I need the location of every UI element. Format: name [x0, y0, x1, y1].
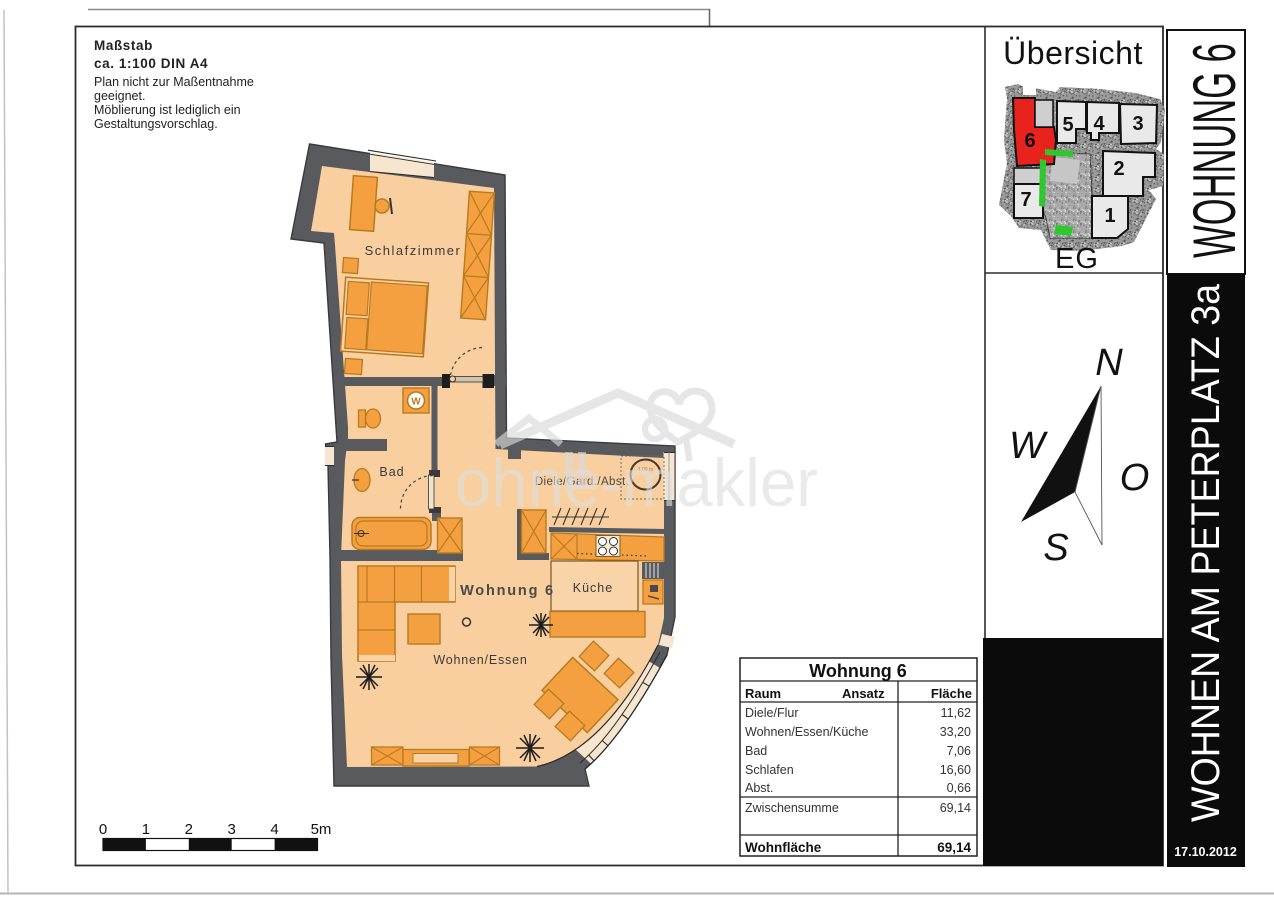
svg-text:2: 2 — [185, 821, 193, 838]
svg-text:Bad: Bad — [379, 465, 404, 479]
svg-text:Zwischensumme: Zwischensumme — [745, 801, 839, 815]
svg-text:Übersicht: Übersicht — [1003, 35, 1143, 71]
svg-text:Wohnen/Essen: Wohnen/Essen — [433, 653, 527, 667]
svg-text:2: 2 — [1113, 158, 1124, 180]
svg-text:0: 0 — [99, 821, 107, 838]
svg-text:3: 3 — [228, 821, 236, 838]
svg-text:Möblierung ist lediglich ein: Möblierung ist lediglich ein — [94, 103, 241, 117]
svg-text:3: 3 — [1132, 113, 1143, 135]
svg-text:Maßstab: Maßstab — [94, 38, 153, 53]
svg-text:Plan nicht zur Maßentnahme: Plan nicht zur Maßentnahme — [94, 75, 254, 89]
svg-text:4: 4 — [270, 821, 278, 838]
svg-text:O: O — [1120, 457, 1150, 499]
svg-text:7: 7 — [1020, 189, 1031, 211]
svg-text:ohne-makler: ohne-makler — [455, 445, 818, 521]
svg-text:N: N — [1095, 342, 1123, 384]
svg-text:S: S — [1043, 527, 1068, 569]
svg-text:Schlafzimmer: Schlafzimmer — [365, 243, 462, 258]
svg-text:1: 1 — [1104, 205, 1115, 227]
svg-text:Wohnfläche: Wohnfläche — [745, 840, 822, 855]
svg-text:6: 6 — [1024, 130, 1035, 152]
svg-text:Küche: Küche — [573, 581, 613, 595]
svg-text:WOHNUNG 6: WOHNUNG 6 — [1182, 43, 1248, 258]
svg-text:geeignet.: geeignet. — [94, 89, 145, 103]
svg-text:ca. 1:100 DIN A4: ca. 1:100 DIN A4 — [94, 56, 208, 71]
svg-text:1: 1 — [142, 821, 150, 838]
svg-text:33,20: 33,20 — [940, 725, 971, 739]
svg-text:Wohnung 6: Wohnung 6 — [460, 583, 555, 599]
svg-text:11,62: 11,62 — [941, 706, 971, 720]
svg-text:Ansatz: Ansatz — [842, 686, 885, 701]
svg-text:WOHNEN AM PETERPLATZ 3a: WOHNEN AM PETERPLATZ 3a — [1184, 284, 1228, 822]
svg-text:0,66: 0,66 — [947, 781, 971, 795]
svg-text:69,14: 69,14 — [937, 840, 971, 855]
svg-text:5: 5 — [1062, 114, 1073, 136]
svg-text:Abst.: Abst. — [745, 781, 774, 795]
svg-text:Wohnen/Essen/Küche: Wohnen/Essen/Küche — [745, 725, 869, 739]
svg-text:Diele/Flur: Diele/Flur — [745, 706, 799, 720]
svg-text:Bad: Bad — [745, 744, 767, 758]
svg-text:Schlafen: Schlafen — [745, 763, 794, 777]
svg-text:Raum: Raum — [745, 686, 781, 701]
svg-text:Gestaltungsvorschlag.: Gestaltungsvorschlag. — [94, 117, 218, 131]
svg-text:7,06: 7,06 — [947, 744, 971, 758]
svg-text:5m: 5m — [311, 821, 332, 838]
svg-text:EG: EG — [1055, 243, 1099, 275]
svg-text:Fläche: Fläche — [931, 686, 972, 701]
svg-text:4: 4 — [1093, 113, 1105, 135]
svg-text:16,60: 16,60 — [940, 763, 971, 777]
svg-text:W: W — [411, 397, 421, 408]
svg-text:W: W — [1009, 425, 1048, 467]
svg-text:17.10.2012: 17.10.2012 — [1174, 845, 1237, 859]
svg-text:69,14: 69,14 — [940, 801, 971, 815]
svg-text:Wohnung 6: Wohnung 6 — [809, 661, 907, 681]
